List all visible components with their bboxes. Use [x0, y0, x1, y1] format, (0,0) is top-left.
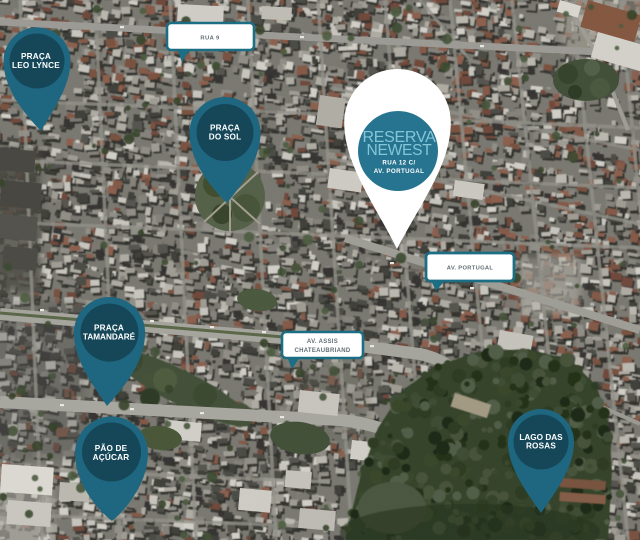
- svg-text:PRAÇA: PRAÇA: [21, 52, 51, 61]
- svg-text:AV. PORTUGAL: AV. PORTUGAL: [374, 168, 425, 175]
- svg-text:TAMANDARÉ: TAMANDARÉ: [83, 331, 136, 341]
- svg-text:PÃO DE: PÃO DE: [95, 443, 128, 453]
- svg-text:AV. PORTUGAL: AV. PORTUGAL: [447, 266, 494, 272]
- svg-text:AÇÚCAR: AÇÚCAR: [93, 451, 130, 462]
- svg-text:NEWEST: NEWEST: [367, 142, 433, 159]
- svg-text:RUA 9: RUA 9: [200, 36, 220, 42]
- svg-text:DO SOL: DO SOL: [209, 132, 242, 141]
- svg-text:ROSAS: ROSAS: [526, 442, 556, 451]
- svg-text:LAGO DAS: LAGO DAS: [519, 433, 563, 442]
- svg-text:CHATEAUBRIAND: CHATEAUBRIAND: [294, 348, 350, 354]
- svg-text:LEO LYNCE: LEO LYNCE: [12, 61, 60, 70]
- svg-text:PRAÇA: PRAÇA: [94, 324, 124, 333]
- svg-text:AV. ASSIS: AV. ASSIS: [307, 339, 338, 345]
- svg-text:RUA 12 C/: RUA 12 C/: [382, 160, 415, 167]
- svg-text:PRAÇA: PRAÇA: [210, 124, 240, 133]
